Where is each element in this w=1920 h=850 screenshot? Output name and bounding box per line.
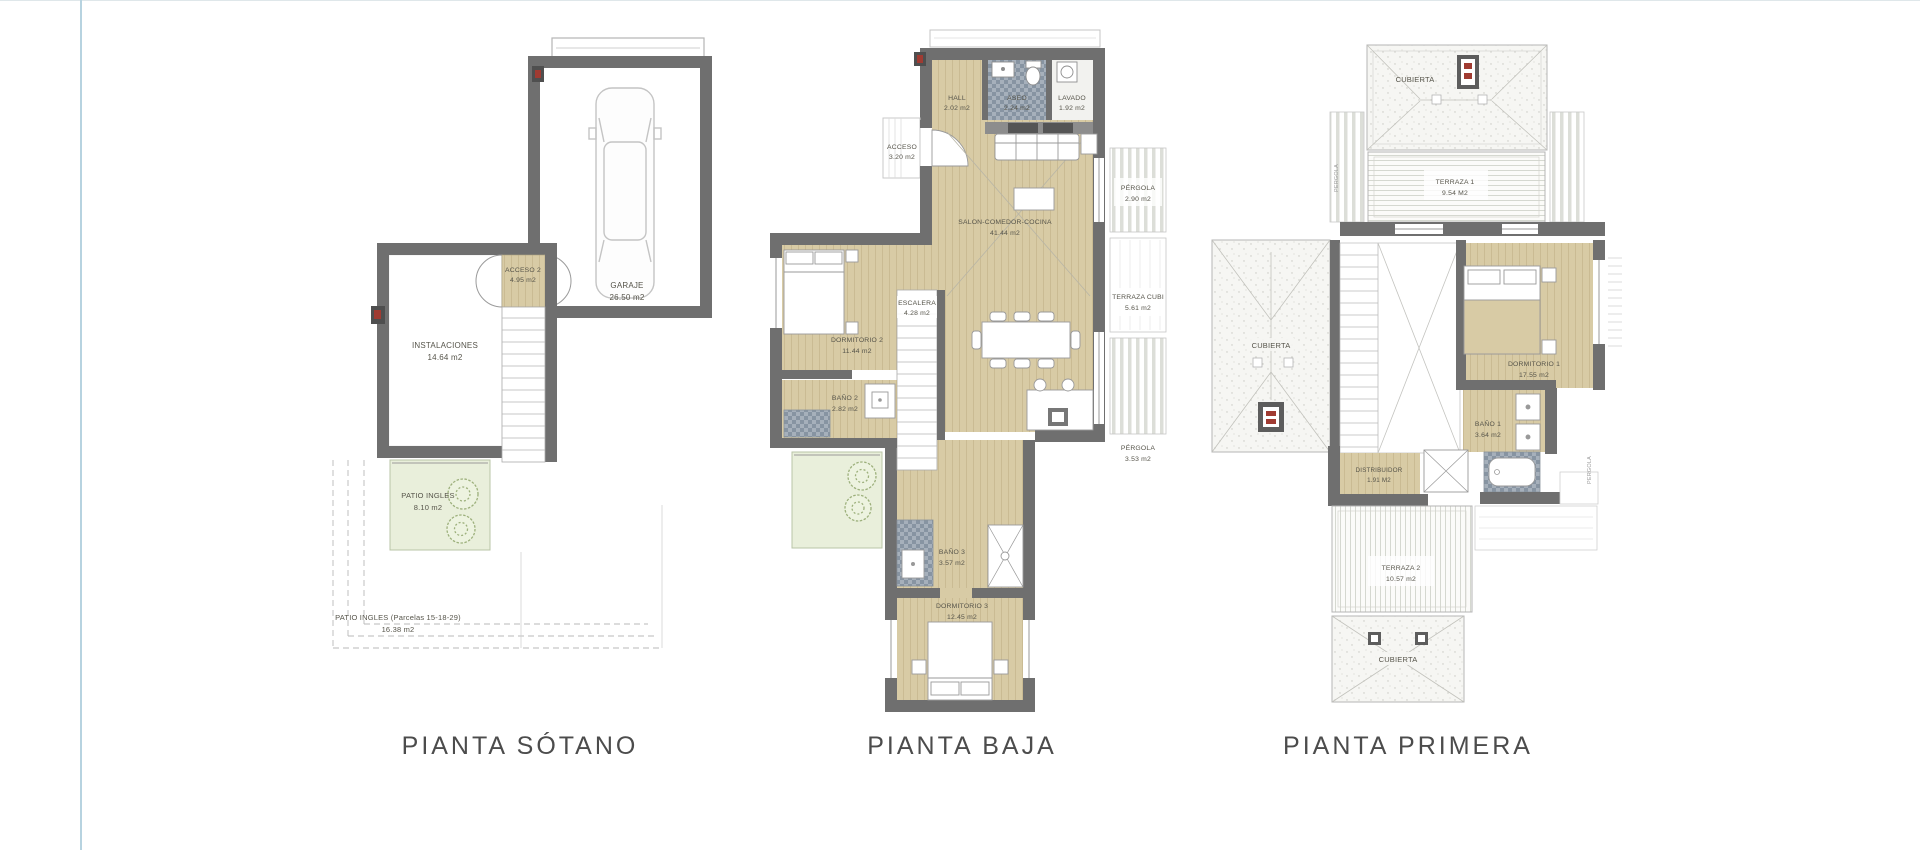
room-area: 41.44 m2 [990, 230, 1020, 237]
room-label: DORMITORIO 3 [936, 603, 988, 610]
sink-icon [865, 384, 895, 418]
washer-icon [1057, 62, 1077, 82]
room-area: 9.54 M2 [1442, 190, 1468, 197]
floorplans-drawing: GARAJE 26.50 m2 INSTALACIONES 14.64 m2 [0, 0, 1920, 850]
chimney-icon [1258, 402, 1284, 432]
pergola-1: PÉRGOLA 2.90 m2 [1110, 148, 1166, 232]
label-escalera: ESCALERA 4.28 m2 [897, 296, 937, 318]
roof-top: CUBIERTA [1367, 45, 1547, 150]
room-label: BAÑO 3 [939, 547, 965, 556]
plan-sotano: GARAJE 26.50 m2 INSTALACIONES 14.64 m2 [333, 38, 712, 648]
room-area: 2.02 m2 [944, 105, 970, 112]
toilet-icon [1026, 61, 1041, 85]
upper-body-wall [1340, 222, 1605, 236]
shower-icon [1424, 450, 1468, 492]
room-label: TERRAZA 2 [1382, 565, 1421, 572]
room-dormitorio-2: DORMITORIO 2 11.44 m2 [782, 245, 897, 370]
top-block: HALL 2.02 m2 ASEO 2.24 m2 LAVADO 1.92 m2 [914, 48, 1105, 124]
wall-marker [917, 55, 923, 63]
garage-door [552, 38, 704, 58]
room-label: BAÑO 1 [1475, 419, 1501, 428]
label-patio-parcelas: PATIO INGLES (Parcelas 15-18-29) 16.38 m… [335, 613, 461, 634]
label-pergola-2: PÉRGOLA 3.53 m2 [1121, 443, 1156, 463]
chimney-icon [1457, 55, 1479, 89]
pergola-side-label: PERGOLA [1587, 456, 1593, 484]
room-label: TERRAZA 1 [1436, 179, 1475, 186]
room-area: 16.38 m2 [382, 625, 415, 634]
room-area: 4.28 m2 [904, 310, 930, 317]
room-area: 3.53 m2 [1125, 456, 1151, 463]
room-label: CUBIERTA [1252, 341, 1291, 350]
patio-garden [792, 452, 882, 548]
room-label: BAÑO 2 [832, 393, 858, 402]
room-area: 2.82 m2 [832, 406, 858, 413]
roof-left: CUBIERTA [1212, 240, 1330, 452]
room-label: ESCALERA [898, 300, 936, 307]
room-area: 12.45 m2 [947, 614, 977, 621]
wall-marker [535, 70, 541, 78]
pergola-band-right [1550, 112, 1584, 222]
room-area: 1.92 m2 [1059, 105, 1085, 112]
coffee-table-icon [1014, 188, 1054, 210]
room-label: DORMITORIO 1 [1508, 361, 1560, 368]
property-line [521, 505, 662, 648]
terraza-cubierta: TERRAZA CUBI 5.61 m2 [1110, 238, 1166, 332]
shower-icon [988, 525, 1023, 587]
roof-edge [930, 30, 1100, 47]
room-terraza-1: TERRAZA 1 9.54 M2 [1368, 152, 1545, 222]
room-area: 1.91 M2 [1367, 477, 1391, 484]
room-bano-2: BAÑO 2 2.82 m2 [770, 370, 897, 448]
room-label: GARAJE [610, 281, 643, 290]
label-cubierta-top: CUBIERTA [1396, 75, 1435, 84]
room-label: PÉRGOLA [1121, 183, 1156, 192]
bathtub-icon [1480, 452, 1560, 504]
room-area: 11.44 m2 [842, 348, 871, 355]
room-label: ACCESO [887, 144, 917, 151]
plan-title-primera: PIANTA PRIMERA [1218, 732, 1598, 761]
plan-primera: CUBIERTA PERGOLA TERRAZA 1 9.54 M2 [1212, 45, 1622, 702]
plan-title-sotano: PIANTA SÓTANO [330, 732, 710, 761]
room-patio-ingles: PATIO INGLES 8.10 m2 [390, 460, 490, 550]
car-icon [589, 88, 661, 298]
room-area: 26.50 m2 [610, 293, 645, 302]
room-label: ACCESO 2 [505, 267, 541, 274]
room-area: 2.24 m2 [1004, 105, 1030, 112]
room-label: HALL [948, 95, 966, 102]
room-area: 14.64 m2 [428, 353, 463, 362]
roof-bottom: CUBIERTA [1332, 616, 1464, 702]
room-label: PATIO INGLES (Parcelas 15-18-29) [335, 613, 461, 622]
room-bano-1: BAÑO 1 3.64 m2 [1463, 388, 1557, 454]
room-label: LAVADO [1058, 95, 1086, 102]
room-area: 8.10 m2 [414, 503, 443, 512]
shutter-lines [1608, 258, 1622, 346]
room-terraza-2: TERRAZA 2 10.57 m2 [1332, 506, 1472, 612]
room-label: PÉRGOLA [1121, 443, 1156, 452]
room-label: CUBIERTA [1379, 655, 1418, 664]
staircase [502, 307, 545, 462]
shower-icon [784, 410, 830, 437]
room-acceso: ACCESO 3.20 m2 [883, 118, 920, 178]
room-label: SALON-COMEDOR-COCINA [958, 219, 1052, 226]
room-label: DISTRIBUIDOR [1356, 467, 1403, 474]
label-cubierta-left: CUBIERTA [1248, 338, 1294, 351]
room-dormitorio-1: DORMITORIO 1 17.55 m2 [1456, 240, 1622, 390]
room-area: 5.61 m2 [1125, 305, 1151, 312]
room-label: TERRAZA CUBI [1112, 294, 1164, 301]
label-cubierta-bottom: CUBIERTA [1374, 652, 1422, 665]
wall-marker [374, 310, 381, 319]
kitchen-counter [985, 122, 1093, 134]
room-area: 10.57 m2 [1386, 576, 1416, 583]
room-label: INSTALACIONES [412, 341, 478, 350]
stair-void [1330, 240, 1460, 455]
sink-icon [902, 550, 924, 578]
plan-title-baja: PIANTA BAJA [772, 732, 1152, 761]
room-distribuidor: DISTRIBUIDOR 1.91 M2 [1328, 446, 1428, 506]
room-area: 4.95 m2 [510, 277, 536, 284]
room-label: DORMITORIO 2 [831, 337, 883, 344]
room-area: 17.55 m2 [1519, 372, 1549, 379]
room-label: CUBIERTA [1396, 75, 1435, 84]
room-area: 3.20 m2 [889, 154, 915, 161]
floorplan-sheet: GARAJE 26.50 m2 INSTALACIONES 14.64 m2 [0, 0, 1920, 850]
room-label: ASEO [1007, 95, 1027, 102]
plan-baja: HALL 2.02 m2 ASEO 2.24 m2 LAVADO 1.92 m2… [770, 30, 1166, 712]
room-area: 3.64 m2 [1475, 432, 1501, 439]
room-area: 2.90 m2 [1125, 196, 1151, 203]
room-label: PATIO INGLES [401, 491, 454, 500]
pergola-2: PÉRGOLA 3.53 m2 [1110, 338, 1166, 463]
room-area: 3.57 m2 [939, 560, 965, 567]
pergola-side-label: PERGOLA [1334, 164, 1340, 192]
